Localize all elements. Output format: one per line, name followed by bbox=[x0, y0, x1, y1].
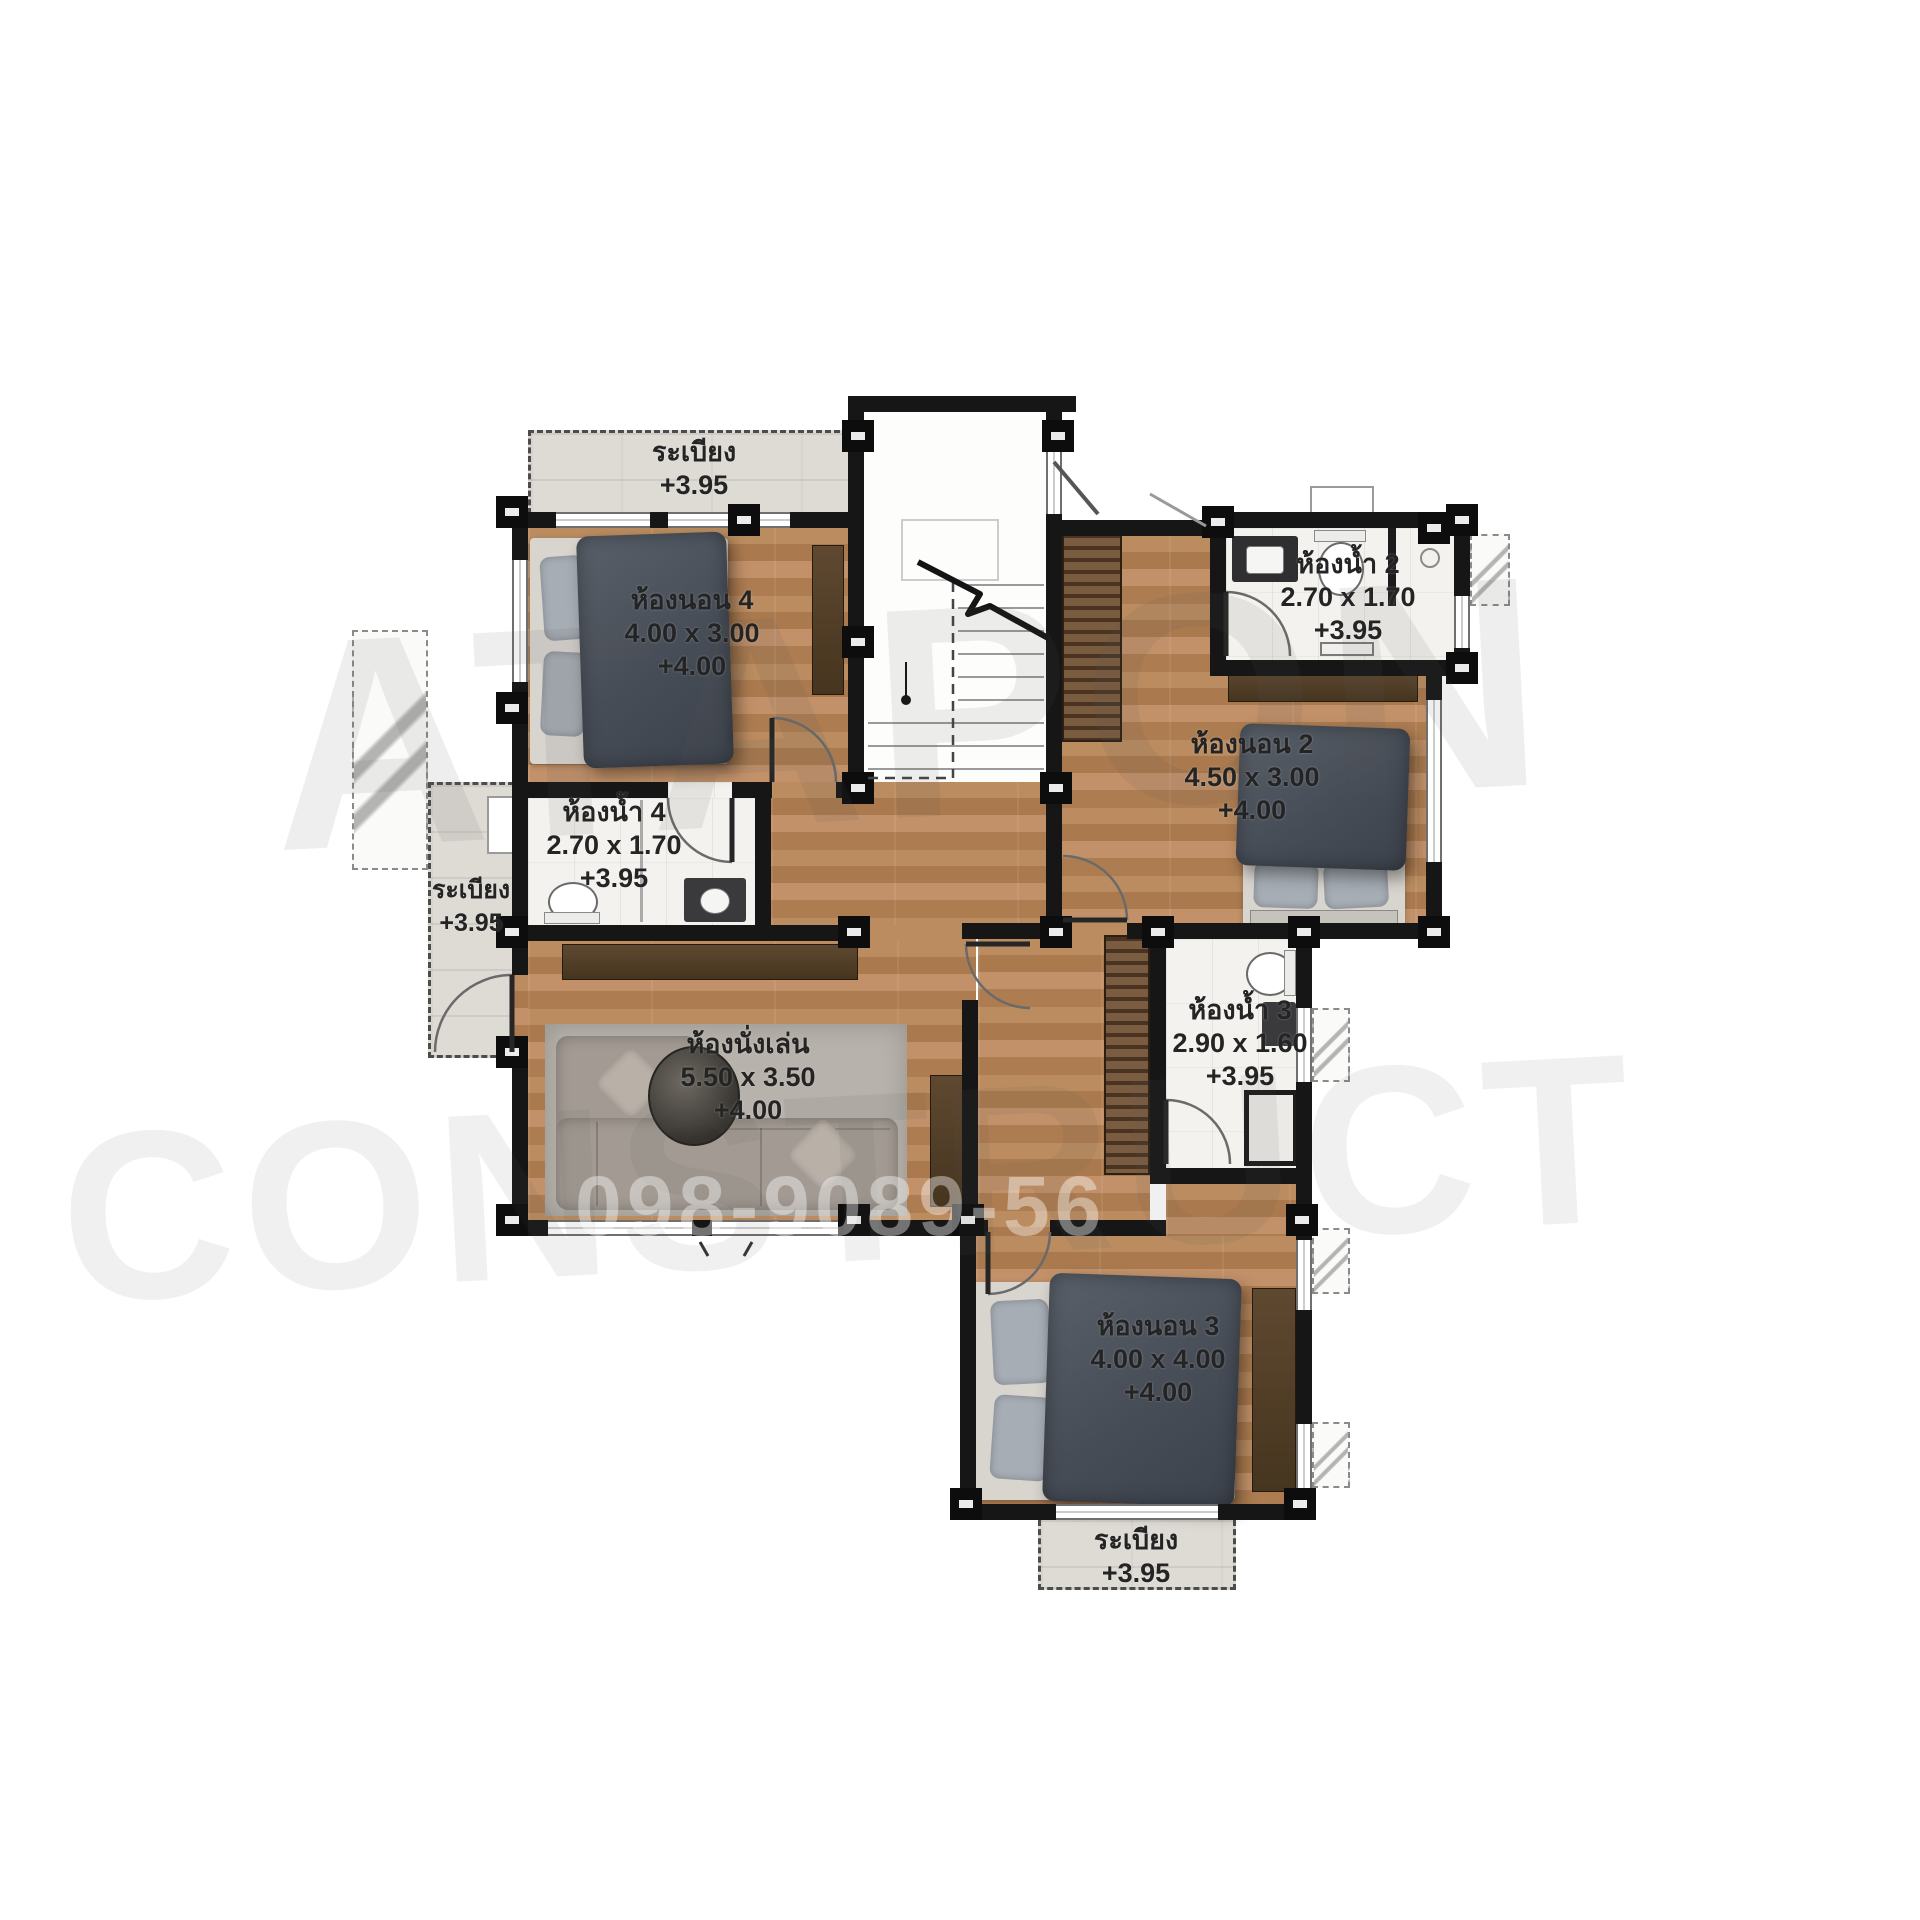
room-level: +3.95 bbox=[652, 469, 736, 502]
room-name: ห้องน้ำ 4 bbox=[546, 796, 681, 829]
label-living: ห้องนั่งเล่น 5.50 x 3.50 +4.00 bbox=[680, 1028, 815, 1127]
label-balcony-left: ระเบียง +3.95 bbox=[432, 874, 510, 940]
room-dims: 5.50 x 3.50 bbox=[680, 1061, 815, 1094]
room-level: +4.00 bbox=[680, 1094, 815, 1127]
room-name: ระเบียง bbox=[1094, 1524, 1178, 1557]
room-name: ห้องน้ำ 3 bbox=[1172, 994, 1307, 1027]
label-bedroom4: ห้องนอน 4 4.00 x 3.00 +4.00 bbox=[624, 584, 759, 683]
room-name: ห้องนั่งเล่น bbox=[680, 1028, 815, 1061]
label-balcony-top: ระเบียง +3.95 bbox=[652, 436, 736, 502]
room-level: +4.00 bbox=[1184, 794, 1319, 827]
label-bath3: ห้องน้ำ 3 2.90 x 1.60 +3.95 bbox=[1172, 994, 1307, 1093]
room-dims: 4.50 x 3.00 bbox=[1184, 761, 1319, 794]
room-dims: 2.70 x 1.70 bbox=[546, 829, 681, 862]
room-dims: 2.70 x 1.70 bbox=[1280, 581, 1415, 614]
room-level: +4.00 bbox=[624, 650, 759, 683]
room-level: +3.95 bbox=[1280, 614, 1415, 647]
floor-plan: ATAPON CONSTRUCT 098-9089-56 ระเบียง +3.… bbox=[0, 0, 1920, 1920]
label-bath4: ห้องน้ำ 4 2.70 x 1.70 +3.95 bbox=[546, 796, 681, 895]
room-name: ระเบียง bbox=[432, 874, 510, 907]
room-dims: 4.00 x 3.00 bbox=[624, 617, 759, 650]
room-name: ห้องนอน 2 bbox=[1184, 728, 1319, 761]
linework-overlay bbox=[0, 0, 1920, 1920]
room-level: +3.95 bbox=[1172, 1060, 1307, 1093]
room-name: ห้องนอน 3 bbox=[1090, 1310, 1225, 1343]
label-bedroom2: ห้องนอน 2 4.50 x 3.00 +4.00 bbox=[1184, 728, 1319, 827]
room-level: +3.95 bbox=[1094, 1557, 1178, 1590]
room-level: +3.95 bbox=[546, 862, 681, 895]
label-balcony-bottom: ระเบียง +3.95 bbox=[1094, 1524, 1178, 1590]
label-bedroom3: ห้องนอน 3 4.00 x 4.00 +4.00 bbox=[1090, 1310, 1225, 1409]
room-level: +3.95 bbox=[432, 907, 510, 940]
room-name: ระเบียง bbox=[652, 436, 736, 469]
room-dims: 4.00 x 4.00 bbox=[1090, 1343, 1225, 1376]
room-level: +4.00 bbox=[1090, 1376, 1225, 1409]
room-name: ห้องนอน 4 bbox=[624, 584, 759, 617]
room-dims: 2.90 x 1.60 bbox=[1172, 1027, 1307, 1060]
room-name: ห้องน้ำ 2 bbox=[1280, 548, 1415, 581]
label-bath2: ห้องน้ำ 2 2.70 x 1.70 +3.95 bbox=[1280, 548, 1415, 647]
